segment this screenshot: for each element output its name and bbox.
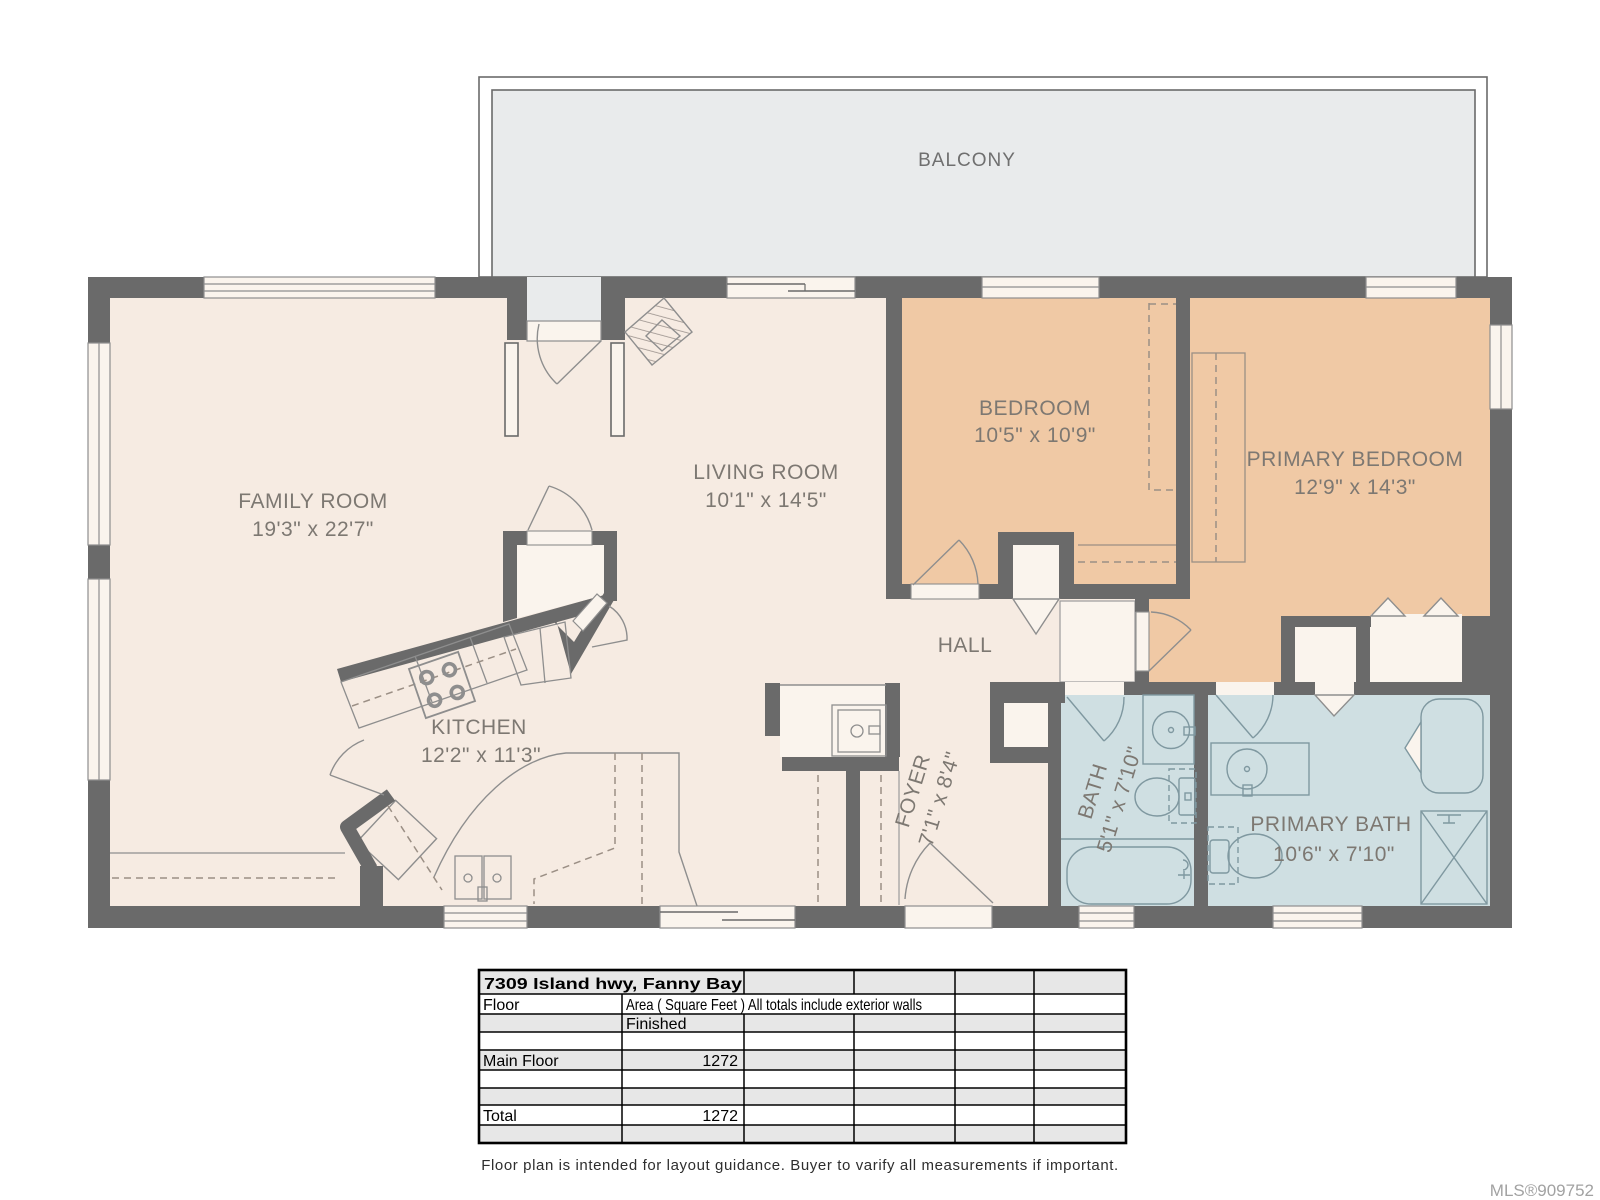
svg-text:Main Floor: Main Floor: [483, 1053, 559, 1070]
svg-text:Floor plan is intended for lay: Floor plan is intended for layout guidan…: [481, 1157, 1119, 1174]
svg-text:LIVING ROOM: LIVING ROOM: [693, 461, 839, 484]
svg-text:BALCONY: BALCONY: [918, 150, 1016, 171]
svg-text:12'9" x 14'3": 12'9" x 14'3": [1294, 476, 1416, 499]
svg-text:10'1" x 14'5": 10'1" x 14'5": [705, 489, 827, 512]
svg-text:HALL: HALL: [938, 634, 993, 657]
svg-text:Total: Total: [483, 1108, 517, 1125]
svg-text:PRIMARY BATH: PRIMARY BATH: [1250, 813, 1411, 836]
svg-text:1272: 1272: [702, 1108, 738, 1125]
svg-text:7309 Island hwy, Fanny Bay: 7309 Island hwy, Fanny Bay: [484, 976, 742, 993]
svg-text:10'5" x 10'9": 10'5" x 10'9": [974, 424, 1096, 447]
svg-text:Floor: Floor: [483, 997, 520, 1014]
svg-text:BEDROOM: BEDROOM: [979, 397, 1091, 420]
svg-text:1272: 1272: [702, 1053, 738, 1070]
svg-text:FAMILY ROOM: FAMILY ROOM: [238, 490, 387, 513]
svg-text:KITCHEN: KITCHEN: [431, 716, 527, 739]
svg-text:PRIMARY BEDROOM: PRIMARY BEDROOM: [1247, 448, 1464, 471]
svg-text:10'6" x 7'10": 10'6" x 7'10": [1273, 843, 1395, 866]
svg-text:12'2" x 11'3": 12'2" x 11'3": [421, 744, 541, 767]
svg-text:MLS®909752: MLS®909752: [1490, 1181, 1594, 1200]
svg-text:19'3" x 22'7": 19'3" x 22'7": [252, 518, 374, 541]
svg-text:Finished: Finished: [626, 1016, 686, 1033]
svg-text:Area ( Square Feet ) All total: Area ( Square Feet ) All totals include …: [626, 997, 922, 1014]
